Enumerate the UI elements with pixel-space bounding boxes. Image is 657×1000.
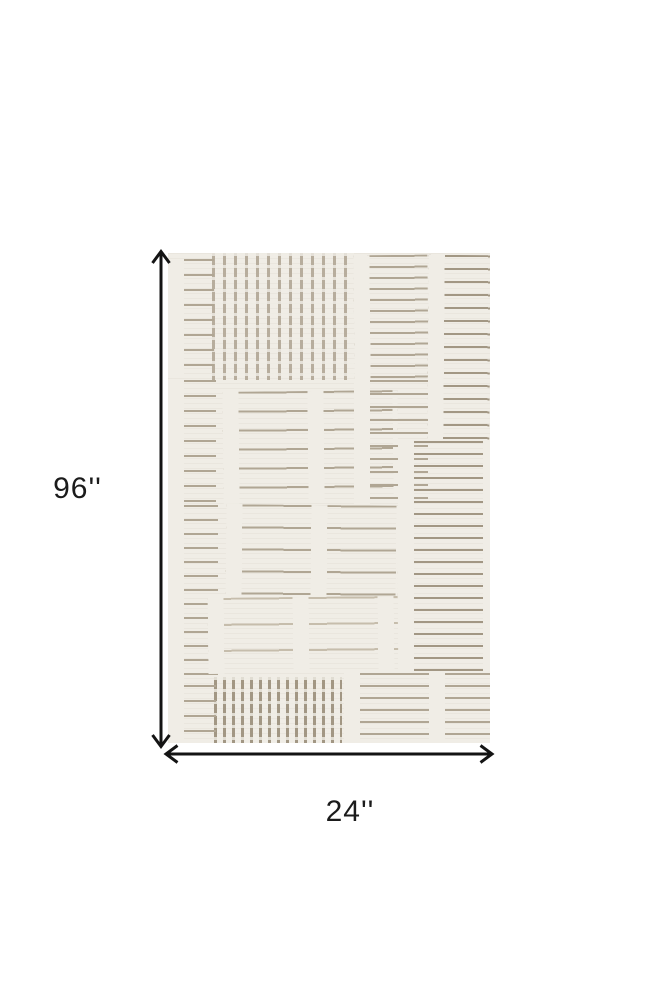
height-dimension-arrow xyxy=(153,252,170,747)
height-dimension-label: 96'' xyxy=(30,472,125,506)
rug-pattern-patch xyxy=(168,685,216,743)
product-dimension-figure: 96'' 24'' xyxy=(0,0,657,1000)
width-dimension-arrow xyxy=(166,746,492,763)
rug-pattern-patch xyxy=(344,673,490,743)
rug-pattern-patch xyxy=(208,596,399,674)
rug-pattern-patch xyxy=(427,255,490,442)
width-dimension-label: 24'' xyxy=(300,795,400,829)
rug-pattern-patch xyxy=(398,441,490,673)
rug-image xyxy=(168,253,490,743)
rug-pattern-patch xyxy=(212,253,354,380)
rug-pattern-patch xyxy=(353,255,428,381)
rug-pattern-patch xyxy=(226,504,399,597)
rug-pattern-patch xyxy=(214,677,342,743)
rug-pattern-patch xyxy=(168,380,216,505)
rug-pattern-patch xyxy=(168,259,214,375)
